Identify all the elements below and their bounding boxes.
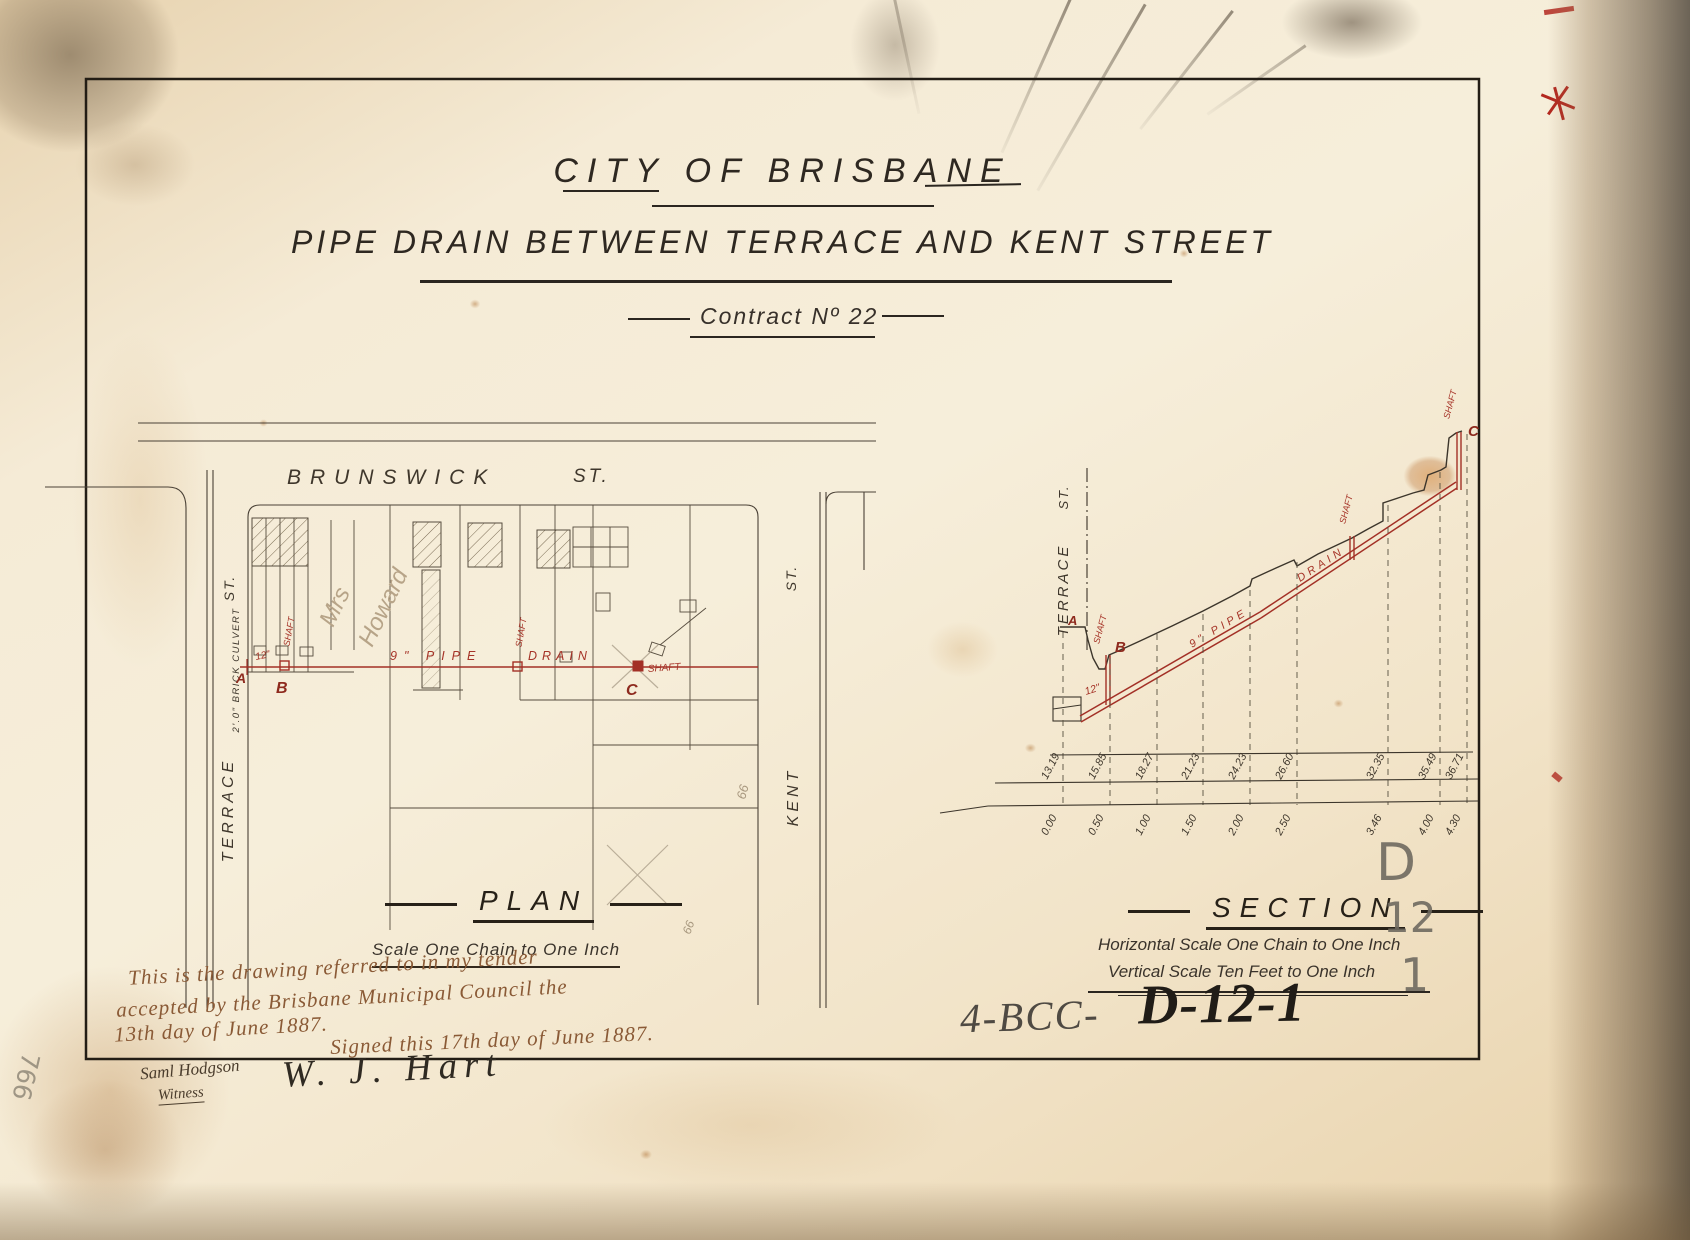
plan-street-kent-st: ST. — [783, 565, 799, 592]
plan-pipe-label: 9" PIPE — [390, 649, 482, 663]
section-pipe-label: 9" PIPE — [1187, 606, 1250, 650]
level-value: 13.19 — [1039, 751, 1063, 781]
level-value: 18.27 — [1133, 751, 1157, 782]
plan-owner-note-word2: Howard — [353, 564, 414, 651]
plan-street-kent: KENT — [785, 768, 802, 827]
plan-lot-number-2: 66 — [680, 918, 698, 936]
plan-street-brunswick: BRUNSWICK — [287, 466, 496, 489]
plan-shaft-label-b: SHAFT — [282, 615, 297, 647]
title-contract: Contract Nº 22 — [700, 303, 878, 330]
level-value: 36.71 — [1443, 751, 1467, 781]
plan-street-brunswick-st: ST. — [573, 466, 610, 487]
level-value: 15.85 — [1086, 751, 1110, 782]
title-subject: PIPE DRAIN BETWEEN TERRACE AND KENT STRE… — [85, 224, 1480, 261]
section-street-terrace-st: ST. — [1056, 484, 1071, 509]
plan-shaft-label-c: SHAFT — [647, 662, 681, 675]
witness-label: Witness — [157, 1084, 204, 1105]
section-shaft-label-mid: SHAFT — [1337, 492, 1355, 525]
chainage-value: 0.00 — [1039, 812, 1060, 837]
plan-street-terrace: TERRACE — [220, 758, 237, 862]
plan-buildings — [248, 505, 758, 930]
section-pipe-size-note: 12" — [1083, 681, 1103, 698]
level-value: 35.49 — [1416, 751, 1440, 781]
section-point-a: A — [1067, 613, 1077, 628]
section-shaft-label-c: SHAFT — [1441, 387, 1459, 420]
caption-dash — [385, 903, 457, 906]
plan-point-b: B — [276, 680, 288, 697]
plan-point-a: A — [235, 670, 246, 686]
chainage-value: 4.30 — [1443, 812, 1464, 837]
section-shaft-label-b: SHAFT — [1091, 612, 1109, 645]
plan-pipe-size-note: 12" — [254, 649, 271, 663]
plan-shaft-label-mid: SHAFT — [514, 616, 529, 648]
level-value: 21.23 — [1179, 751, 1203, 783]
section-point-b: B — [1115, 639, 1126, 656]
chainage-value: 2.50 — [1273, 812, 1295, 838]
section-levels: 13.19 15.85 18.27 21.23 24.23 26.60 32.3… — [1039, 751, 1467, 783]
plan-caption: PLAN — [473, 885, 594, 923]
plan-street-terrace-st: ST. — [221, 575, 237, 602]
section-scale-horizontal: Horizontal Scale One Chain to One Inch — [1098, 935, 1400, 955]
pencil-ref-1: 1 — [1400, 948, 1429, 1002]
chainage-value: 1.50 — [1179, 812, 1200, 837]
plan-owner-note-word1: Mrs — [314, 583, 356, 631]
chainage-value: 0.50 — [1086, 812, 1107, 837]
level-value: 32.35 — [1364, 751, 1388, 782]
chainage-value: 4.00 — [1416, 812, 1437, 837]
section-linework — [940, 431, 1478, 813]
archive-ref-code: D-12-1 — [1137, 971, 1306, 1038]
archive-ref-prefix: 4-BCC- — [959, 990, 1100, 1043]
caption-dash — [1128, 910, 1190, 913]
pencil-ref-d: D — [1376, 833, 1416, 893]
pencil-ref-12: 12 — [1383, 893, 1436, 942]
caption-dash — [610, 903, 682, 906]
level-value: 26.60 — [1273, 751, 1297, 783]
chainage-value: 2.00 — [1226, 812, 1248, 838]
plan-point-c: C — [626, 682, 638, 699]
section-point-c: C — [1468, 423, 1480, 440]
plan-lot-number: 66 — [733, 782, 751, 801]
level-value: 24.23 — [1226, 751, 1250, 783]
drawing-sheet: { "document": { "title_city": "CITY OF B… — [0, 0, 1690, 1240]
section-caption: SECTION — [1206, 892, 1405, 930]
title-city: CITY OF BRISBANE — [85, 152, 1480, 191]
plan-drain-label: DRAIN — [528, 649, 592, 663]
chainage-value: 1.00 — [1133, 812, 1154, 837]
plan-caption-row: PLAN — [385, 885, 682, 923]
